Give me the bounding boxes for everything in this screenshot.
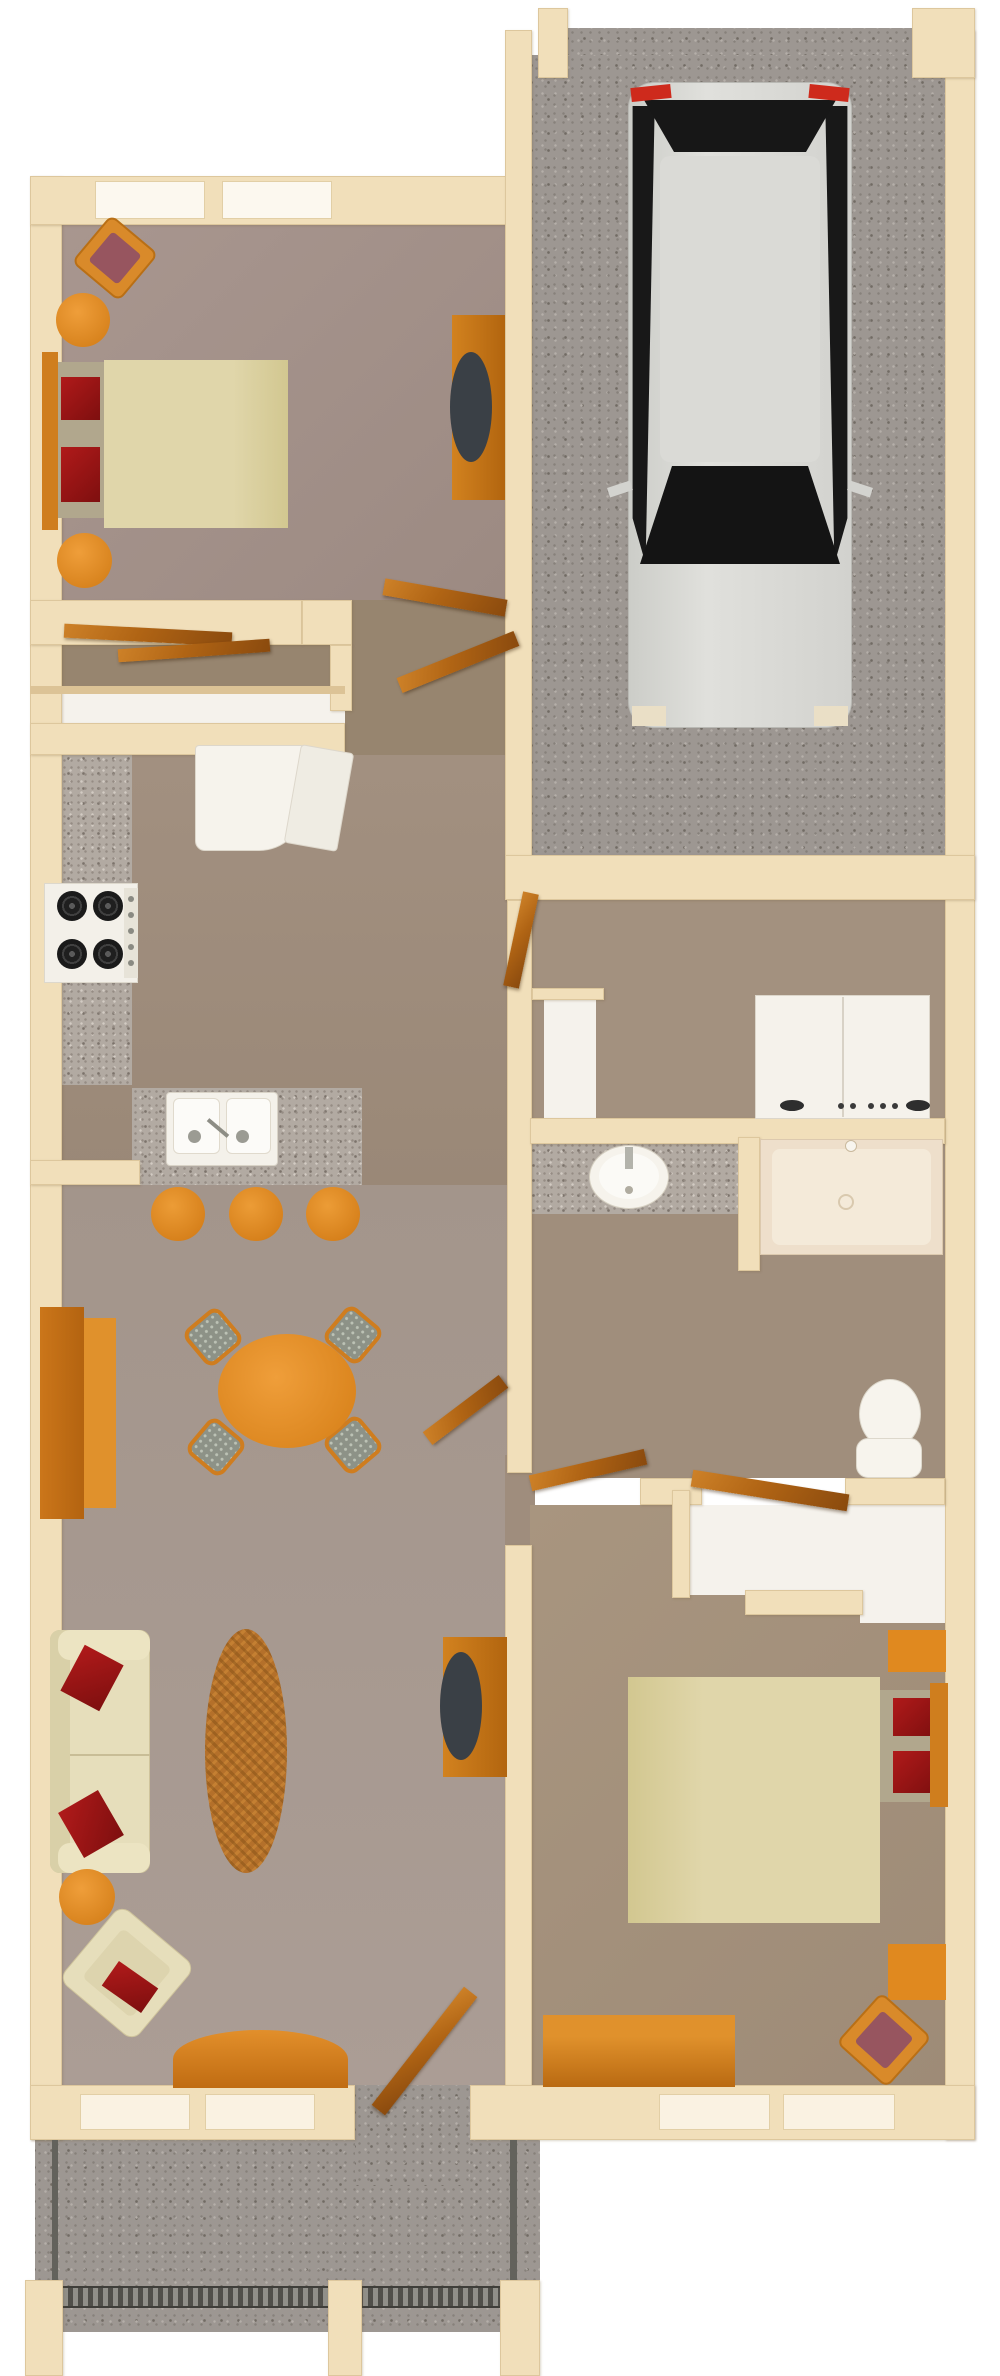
bedroom2-nightstand-bottom — [888, 1944, 946, 2000]
washer-knob-1 — [838, 1103, 844, 1109]
stove-burner-4 — [93, 939, 123, 969]
dining-table — [218, 1334, 356, 1448]
wall-garage-stub-right — [912, 8, 975, 78]
entry-console-table — [173, 2030, 348, 2088]
washer-control-left — [780, 1100, 804, 1111]
stove-burner-3 — [57, 939, 87, 969]
stove-burner-2 — [93, 891, 123, 921]
wall-right-outer — [945, 30, 975, 2140]
wall-closet-top-edge — [30, 686, 345, 694]
bathroom-faucet — [625, 1147, 633, 1169]
bedroom1-round-rug — [57, 533, 112, 588]
utility-closet-floor — [544, 1000, 596, 1118]
wall-utility-closet-top — [532, 988, 604, 1000]
living-desk-chair — [440, 1652, 482, 1760]
patio-rail-bottom — [58, 2286, 513, 2308]
window-bedroom2-2 — [783, 2094, 895, 2130]
wall-bedroom1-bottom-stub — [302, 600, 352, 645]
dining-bookcase-step — [84, 1318, 116, 1508]
bar-stool-3 — [306, 1187, 360, 1241]
wall-living-half — [30, 1160, 140, 1185]
bedroom2-bed — [628, 1677, 880, 1923]
kitchen-sink-basin-right — [226, 1098, 271, 1154]
bedroom2-nightstand-top — [888, 1630, 946, 1672]
wall-bath-stub — [738, 1137, 760, 1271]
fence-post-middle — [328, 2280, 362, 2376]
stove-knob-2 — [128, 912, 134, 918]
window-bedroom1-2 — [222, 181, 332, 219]
window-living-2 — [205, 2094, 315, 2130]
car-bumper-block-right — [814, 706, 848, 726]
sofa-back — [50, 1630, 70, 1873]
washer-knob-2 — [850, 1103, 856, 1109]
bedroom1-desk-chair — [450, 352, 492, 462]
washer-knob-5 — [892, 1103, 898, 1109]
bathtub-faucet — [845, 1140, 857, 1152]
wall-garage-stub-left — [538, 8, 568, 78]
wall-bd2closet-stub — [672, 1490, 690, 1598]
bedroom2-headboard — [930, 1683, 948, 1807]
car-rear-window — [640, 100, 840, 152]
bedroom1-pillow-1 — [61, 377, 100, 420]
fence-post-right — [500, 2280, 540, 2376]
bedroom2-closet-floor-ext — [860, 1595, 945, 1623]
living-oval-rug — [205, 1629, 287, 1873]
bar-stool-2 — [229, 1187, 283, 1241]
car-windshield — [640, 466, 840, 564]
floor-plan — [0, 0, 1000, 2376]
fence-post-left — [25, 2280, 63, 2376]
washer-knob-3 — [868, 1103, 874, 1109]
wall-bedroom2-left — [505, 1545, 532, 2090]
bar-stool-1 — [151, 1187, 205, 1241]
toilet-tank — [856, 1438, 922, 1478]
living-side-table — [59, 1869, 115, 1925]
window-living-1 — [80, 2094, 190, 2130]
washer-knob-4 — [880, 1103, 886, 1109]
bedroom1-round-table — [56, 293, 110, 347]
bathroom-sink-drain — [625, 1186, 633, 1194]
window-bedroom1-1 — [95, 181, 205, 219]
washer-dryer-seam — [842, 997, 844, 1117]
kitchen-faucet-left — [188, 1130, 201, 1143]
bedroom2-pillow-1 — [893, 1698, 935, 1736]
stove-knob-1 — [128, 896, 134, 902]
kitchen-faucet-right — [236, 1130, 249, 1143]
wall-hall-stub — [330, 645, 352, 711]
entry-walkway — [355, 2085, 470, 2185]
bedroom1-pillow-2 — [61, 447, 100, 502]
wall-garage-left — [505, 30, 532, 900]
wall-garage-bottom — [505, 855, 975, 900]
car-bumper-block-left — [632, 706, 666, 726]
stove-knob-3 — [128, 928, 134, 934]
bedroom2-pillow-2 — [893, 1751, 935, 1793]
bedroom1-headboard — [42, 352, 58, 530]
patio-rail-right — [510, 2140, 517, 2290]
stove-knob-5 — [128, 960, 134, 966]
bathtub-drain — [838, 1194, 854, 1210]
stove-knob-4 — [128, 944, 134, 950]
car-roof — [660, 156, 820, 462]
bedroom2-closet-floor — [690, 1505, 945, 1595]
patio-rail-left — [52, 2140, 58, 2290]
washer-control-right — [906, 1100, 930, 1111]
sofa-armrest-bottom — [58, 1843, 150, 1873]
bedroom1-closet-floor — [62, 693, 345, 723]
wall-bd2closet-bottom — [745, 1590, 863, 1615]
sofa-cushion-divider — [70, 1754, 150, 1756]
bedroom2-dresser — [543, 2015, 735, 2087]
dining-bookcase-tall — [40, 1307, 84, 1519]
stove-burner-1 — [57, 891, 87, 921]
window-bedroom2-1 — [659, 2094, 770, 2130]
bedroom1-bed — [104, 360, 288, 528]
wall-bath-bottom-right — [845, 1478, 945, 1505]
